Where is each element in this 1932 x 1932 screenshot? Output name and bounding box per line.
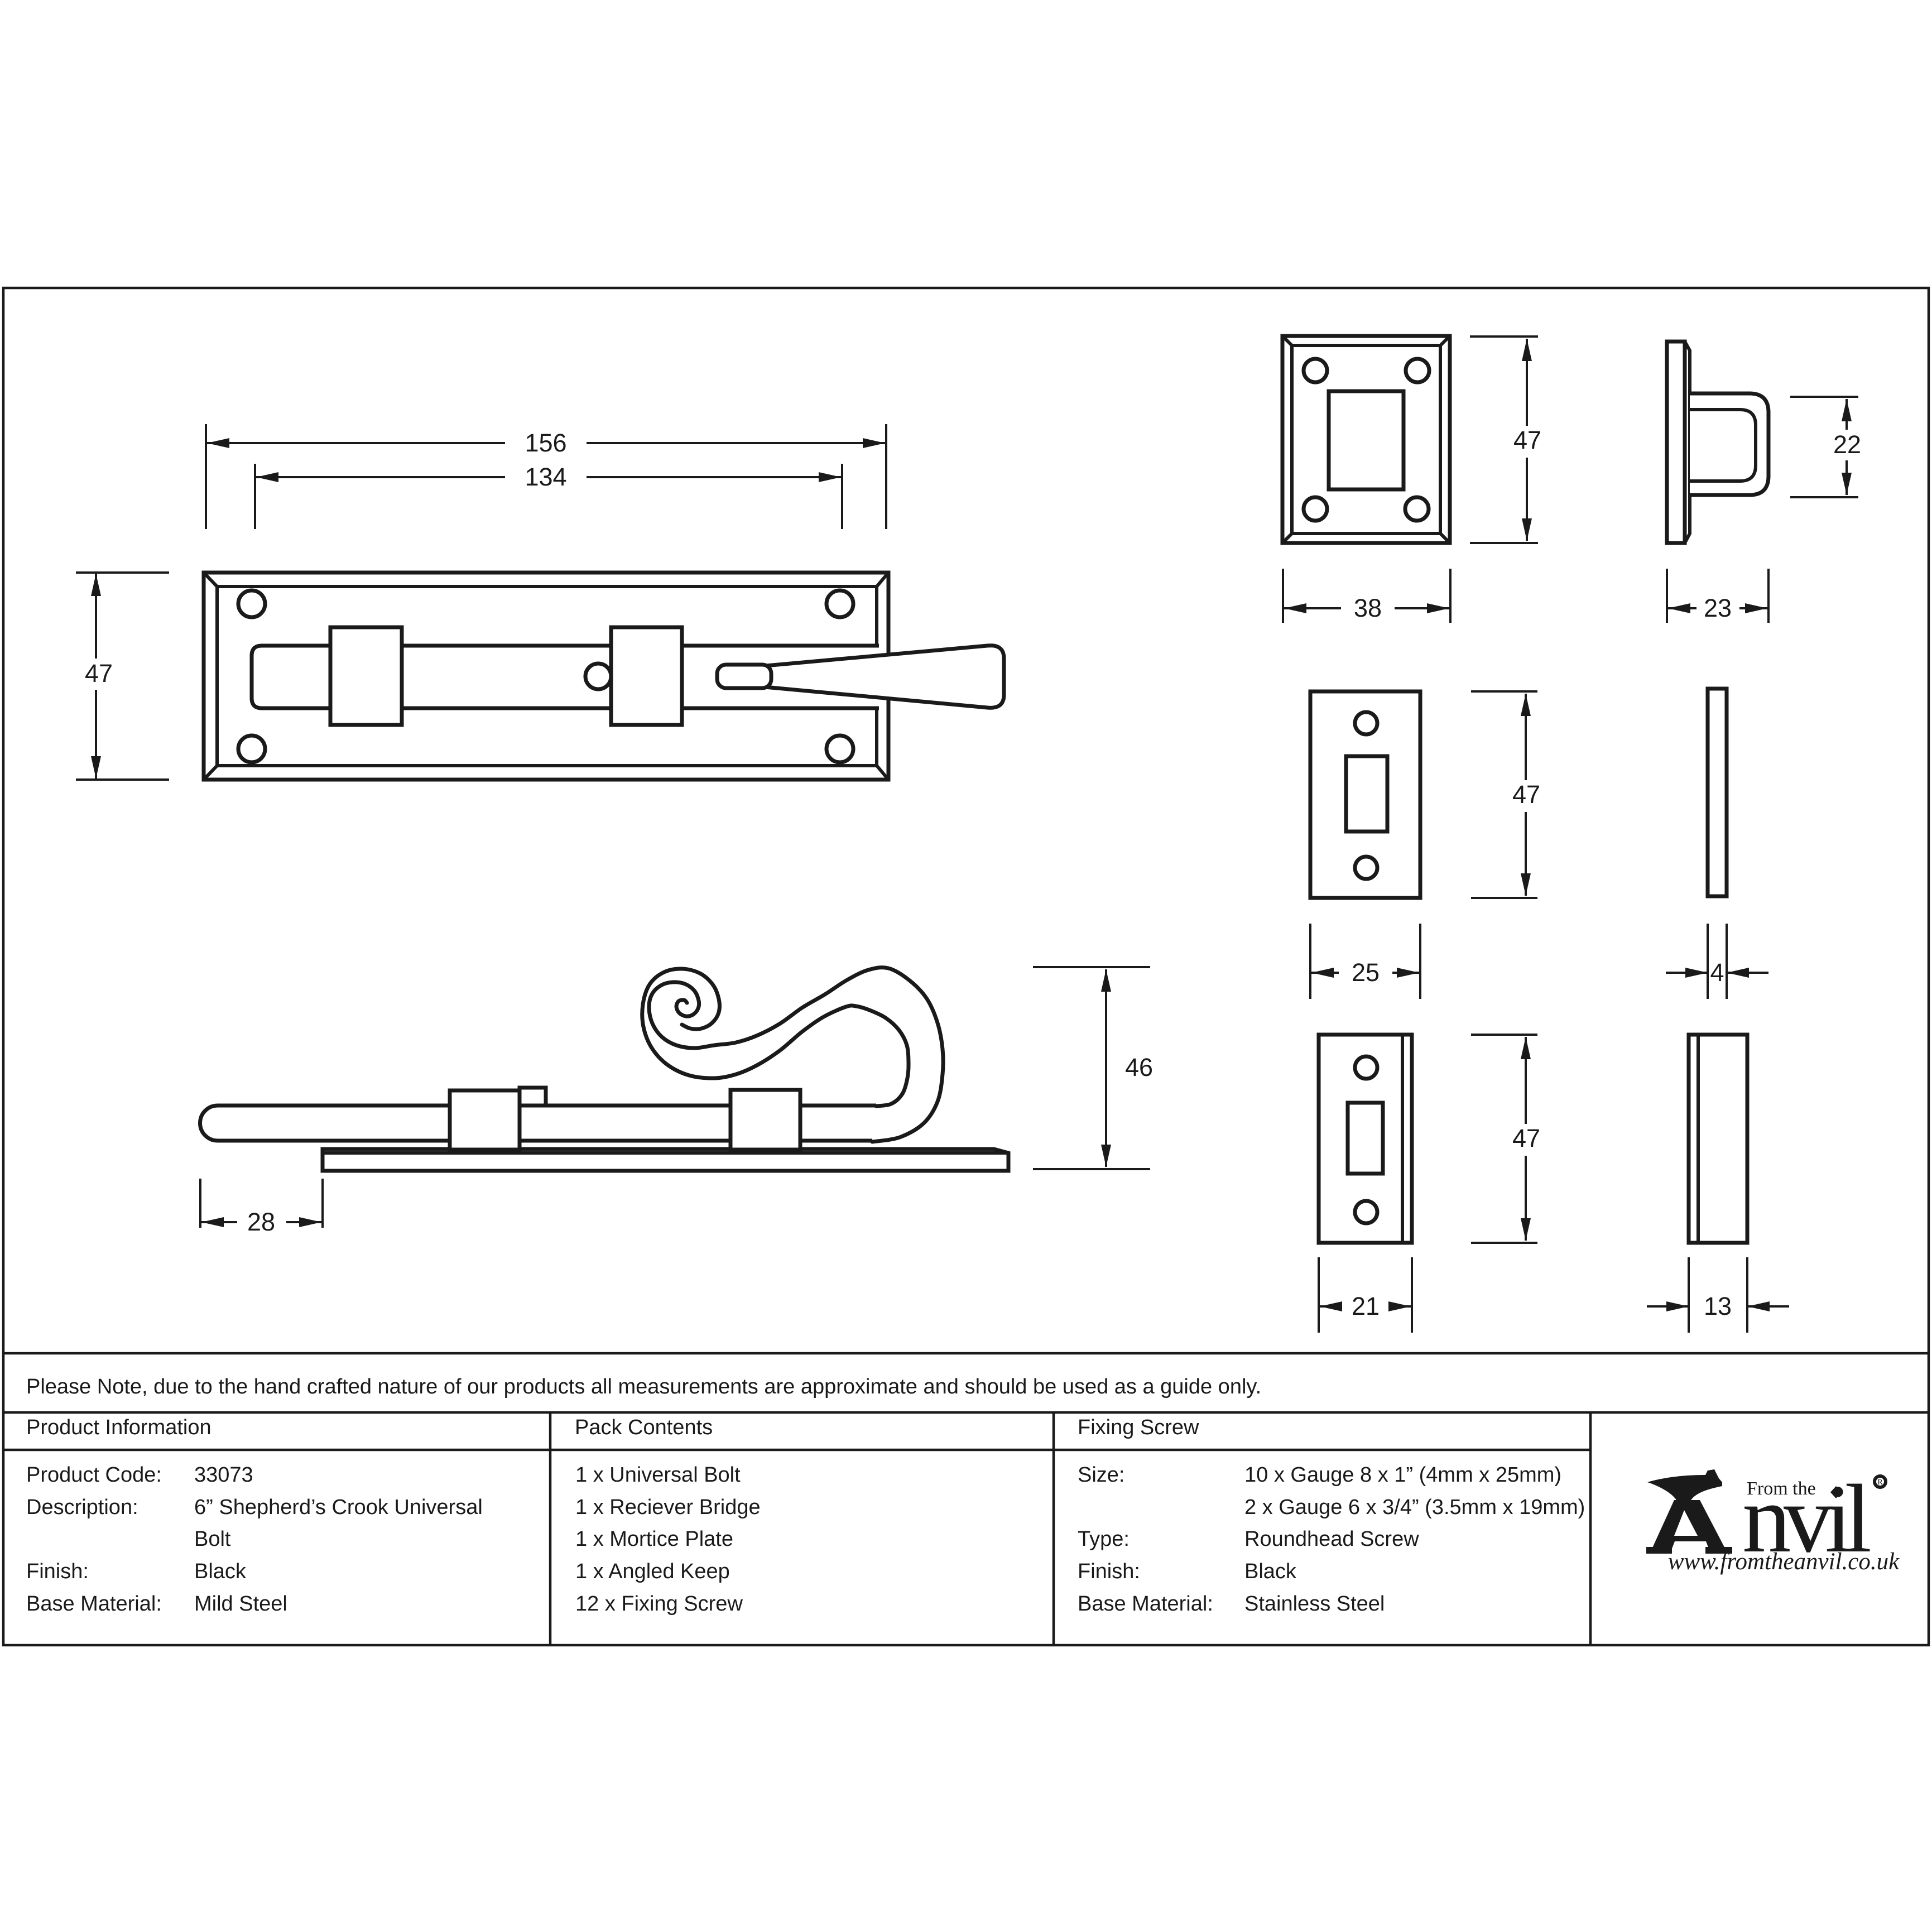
svg-text:Finish:: Finish: <box>26 1560 89 1583</box>
svg-text:47: 47 <box>1512 1124 1540 1152</box>
svg-text:Black: Black <box>1244 1560 1297 1583</box>
svg-text:Mild Steel: Mild Steel <box>194 1592 287 1616</box>
svg-text:Base Material:: Base Material: <box>1078 1592 1213 1616</box>
svg-text:21: 21 <box>1352 1292 1380 1320</box>
svg-text:134: 134 <box>525 463 566 491</box>
svg-text:22: 22 <box>1833 430 1861 459</box>
svg-text:Black: Black <box>194 1560 247 1583</box>
svg-text:1 x Angled Keep: 1 x Angled Keep <box>575 1560 730 1583</box>
svg-text:Size:: Size: <box>1078 1463 1124 1487</box>
svg-text:156: 156 <box>525 429 566 457</box>
svg-text:Please Note, due to the hand c: Please Note, due to the hand crafted nat… <box>26 1375 1261 1398</box>
svg-text:1 x Universal Bolt: 1 x Universal Bolt <box>575 1463 741 1487</box>
svg-text:Base Material:: Base Material: <box>26 1592 162 1616</box>
svg-text:23: 23 <box>1704 594 1732 622</box>
svg-text:Pack Contents: Pack Contents <box>575 1416 713 1439</box>
svg-text:47: 47 <box>85 659 113 688</box>
svg-text:Fixing Screw: Fixing Screw <box>1078 1416 1199 1439</box>
svg-text:Stainless Steel: Stainless Steel <box>1244 1592 1385 1616</box>
svg-text:13: 13 <box>1704 1292 1732 1320</box>
svg-text:www.fromtheanvil.co.uk: www.fromtheanvil.co.uk <box>1668 1549 1900 1575</box>
svg-text:Type:: Type: <box>1078 1527 1130 1551</box>
svg-text:46: 46 <box>1125 1053 1153 1082</box>
svg-text:25: 25 <box>1352 958 1380 987</box>
svg-text:6” Shepherd’s Crook Universal: 6” Shepherd’s Crook Universal <box>194 1496 483 1519</box>
svg-text:Product Information: Product Information <box>26 1416 212 1439</box>
svg-text:Finish:: Finish: <box>1078 1560 1140 1583</box>
svg-text:Description:: Description: <box>26 1496 138 1519</box>
svg-text:12 x Fixing Screw: 12 x Fixing Screw <box>575 1592 743 1616</box>
svg-text:R: R <box>1877 1478 1883 1487</box>
svg-text:1 x Mortice Plate: 1 x Mortice Plate <box>575 1527 733 1551</box>
svg-text:33073: 33073 <box>194 1463 253 1487</box>
svg-text:1 x Reciever Bridge: 1 x Reciever Bridge <box>575 1496 761 1519</box>
svg-text:Product Code:: Product Code: <box>26 1463 162 1487</box>
svg-text:Bolt: Bolt <box>194 1527 231 1551</box>
svg-text:4: 4 <box>1710 958 1724 987</box>
svg-text:Roundhead Screw: Roundhead Screw <box>1244 1527 1419 1551</box>
svg-text:38: 38 <box>1354 594 1382 622</box>
svg-text:10 x Gauge 8 x 1” (4mm x 25mm): 10 x Gauge 8 x 1” (4mm x 25mm) <box>1244 1463 1561 1487</box>
svg-text:28: 28 <box>247 1208 275 1236</box>
svg-text:47: 47 <box>1513 426 1541 454</box>
svg-text:47: 47 <box>1512 780 1540 809</box>
svg-text:2 x Gauge 6 x 3/4” (3.5mm x 19: 2 x Gauge 6 x 3/4” (3.5mm x 19mm) <box>1244 1496 1585 1519</box>
